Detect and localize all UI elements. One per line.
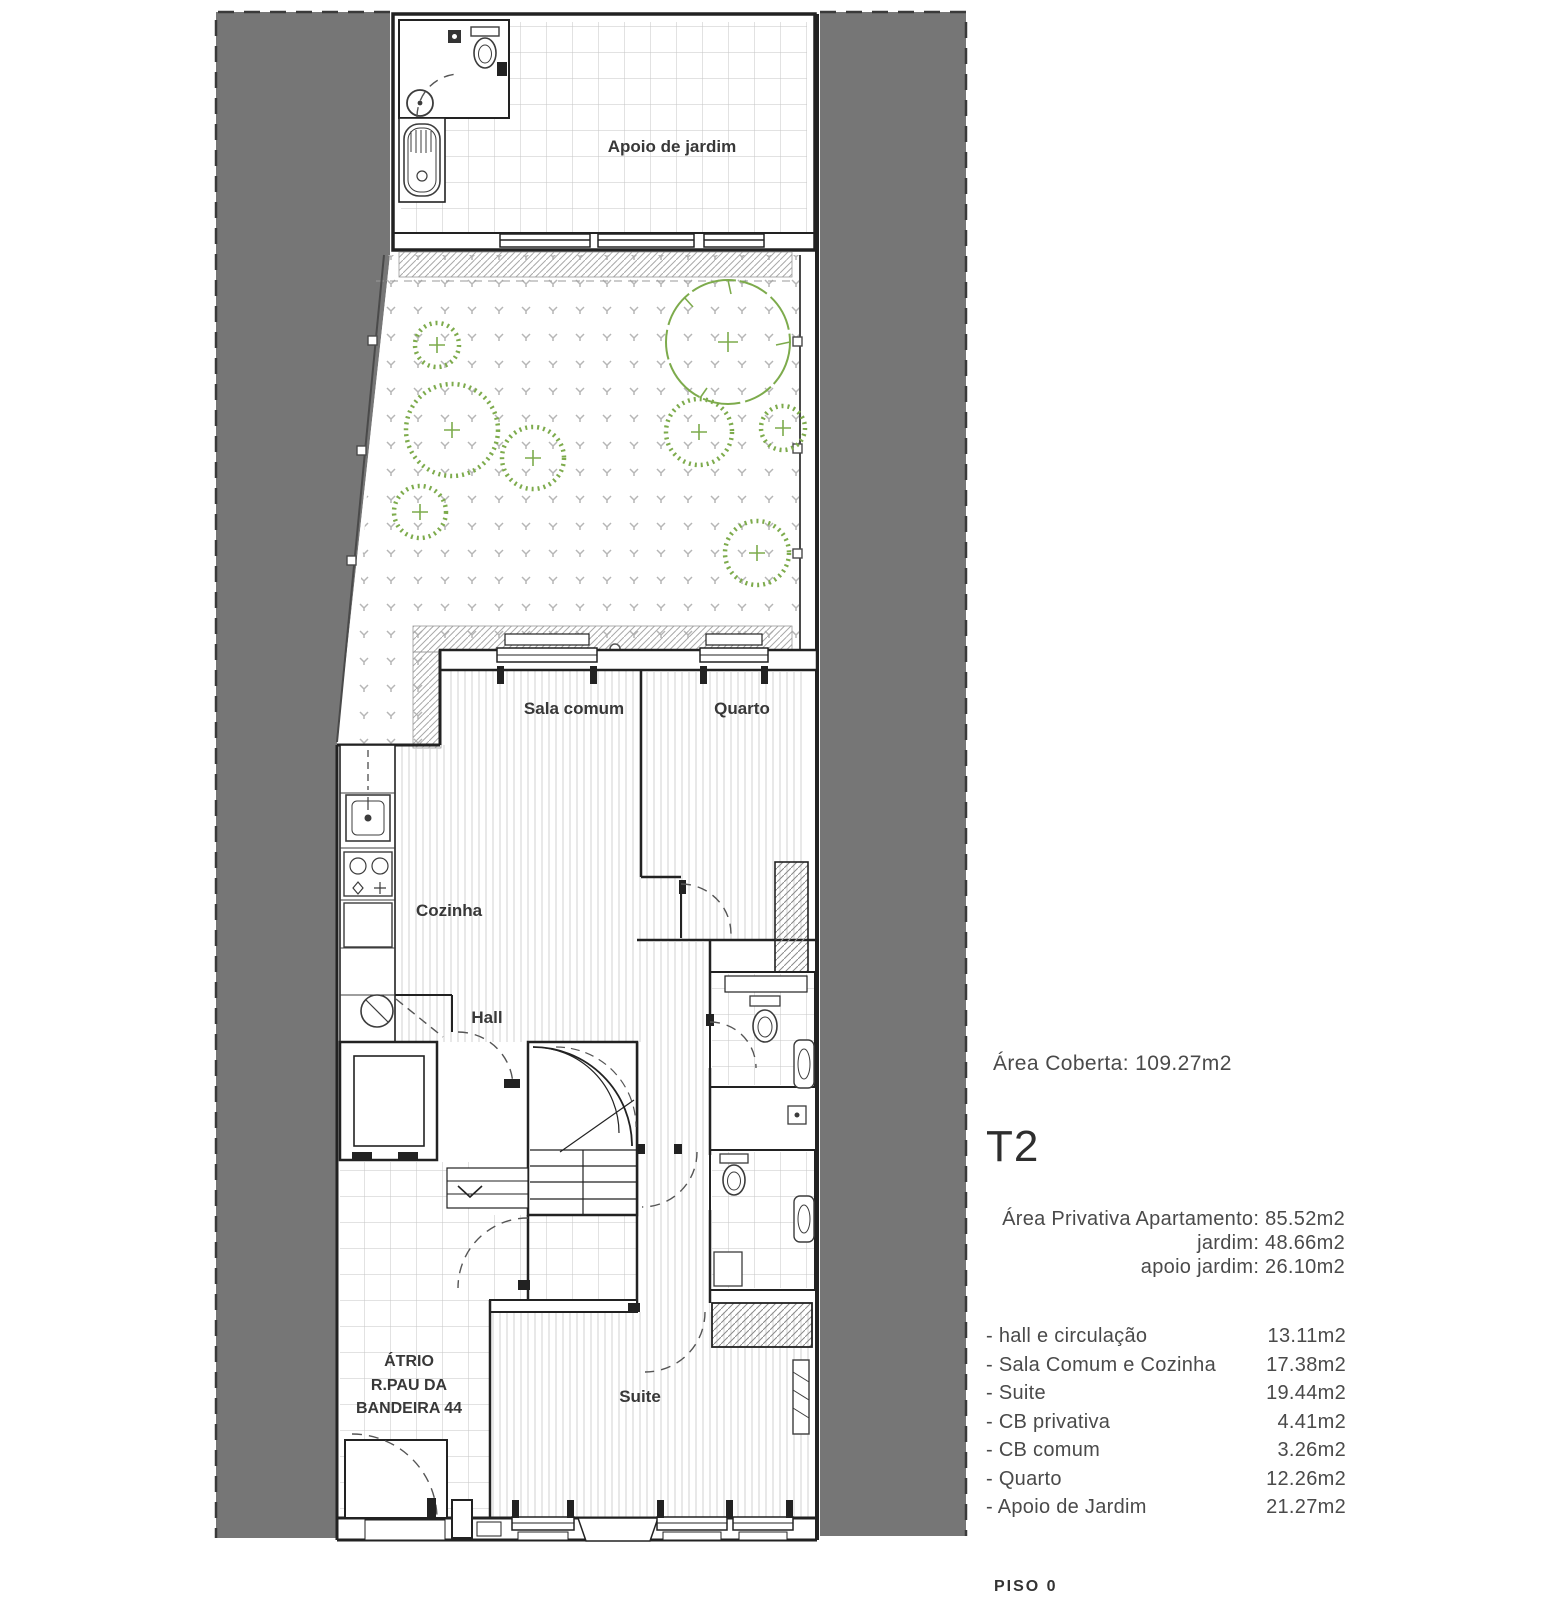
toilet-tank [720,1154,748,1163]
floor-plan-page: { "plan_labels": { "apoio": "Apoio de ja… [0,0,1556,1609]
floor-label: PISO 0 [994,1578,1058,1596]
quarto-wardrobe [775,862,808,972]
area-coberta-text: Área Coberta: 109.27m2 [993,1052,1232,1076]
toilet-tank [750,996,780,1006]
stair-landing-floor [490,1215,637,1300]
private-area-line: apoio jardim: 26.10m2 [963,1255,1345,1279]
suite-wardrobe [712,1303,812,1347]
room-area-row: - hall e circulação13.11m2 [986,1322,1346,1351]
bay-step [578,1518,658,1541]
toilet-tank [471,27,499,36]
label-quarto: Quarto [714,699,770,718]
private-area-line: Área Privativa Apartamento: 85.52m2 [963,1207,1345,1231]
shower-tray [714,1252,742,1286]
private-area-line: jardim: 48.66m2 [963,1231,1345,1255]
bathroom-shelf [725,976,807,992]
room-area-row: - CB comum3.26m2 [986,1436,1346,1465]
sink-icon [794,1040,814,1088]
hall-steps [447,1168,528,1208]
radiator-icon [793,1360,809,1434]
apoio-de-jardim-room: Apoio de jardim [393,14,815,250]
room-areas-list: - hall e circulação13.11m2 - Sala Comum … [986,1322,1346,1522]
sink-icon [794,1196,814,1242]
apoio-bathroom [399,20,509,118]
room-area-row: - Sala Comum e Cozinha17.38m2 [986,1351,1346,1380]
common-bathroom [706,972,815,1088]
svg-text:ÁTRIO: ÁTRIO [384,1351,434,1370]
label-apoio: Apoio de jardim [608,137,736,156]
room-area-row: - CB privativa4.41m2 [986,1408,1346,1437]
private-bathroom [710,1150,815,1290]
door-leaf [497,62,507,76]
room-area-row: - Suite19.44m2 [986,1379,1346,1408]
elevator [340,1042,437,1160]
label-sala: Sala comum [524,699,624,718]
svg-text:R.PAU DA: R.PAU DA [371,1377,448,1394]
label-cozinha: Cozinha [416,901,483,920]
suite-door-leaf [628,1303,640,1312]
label-hall: Hall [471,1008,502,1027]
paving-band-side [413,652,441,748]
room-area-row: - Quarto12.26m2 [986,1465,1346,1494]
svg-text:BANDEIRA 44: BANDEIRA 44 [356,1400,462,1417]
private-areas-block: Área Privativa Apartamento: 85.52m2 jard… [963,1207,1345,1279]
stove-icon [344,852,392,896]
apoio-bathtub [399,118,445,202]
apoio-windows [500,234,764,247]
room-area-row: - Apoio de Jardim21.27m2 [986,1493,1346,1522]
paving-band-top [399,252,792,277]
label-suite: Suite [619,1387,661,1406]
entrance-pillar [452,1500,472,1538]
typology-title: T2 [986,1122,1039,1172]
